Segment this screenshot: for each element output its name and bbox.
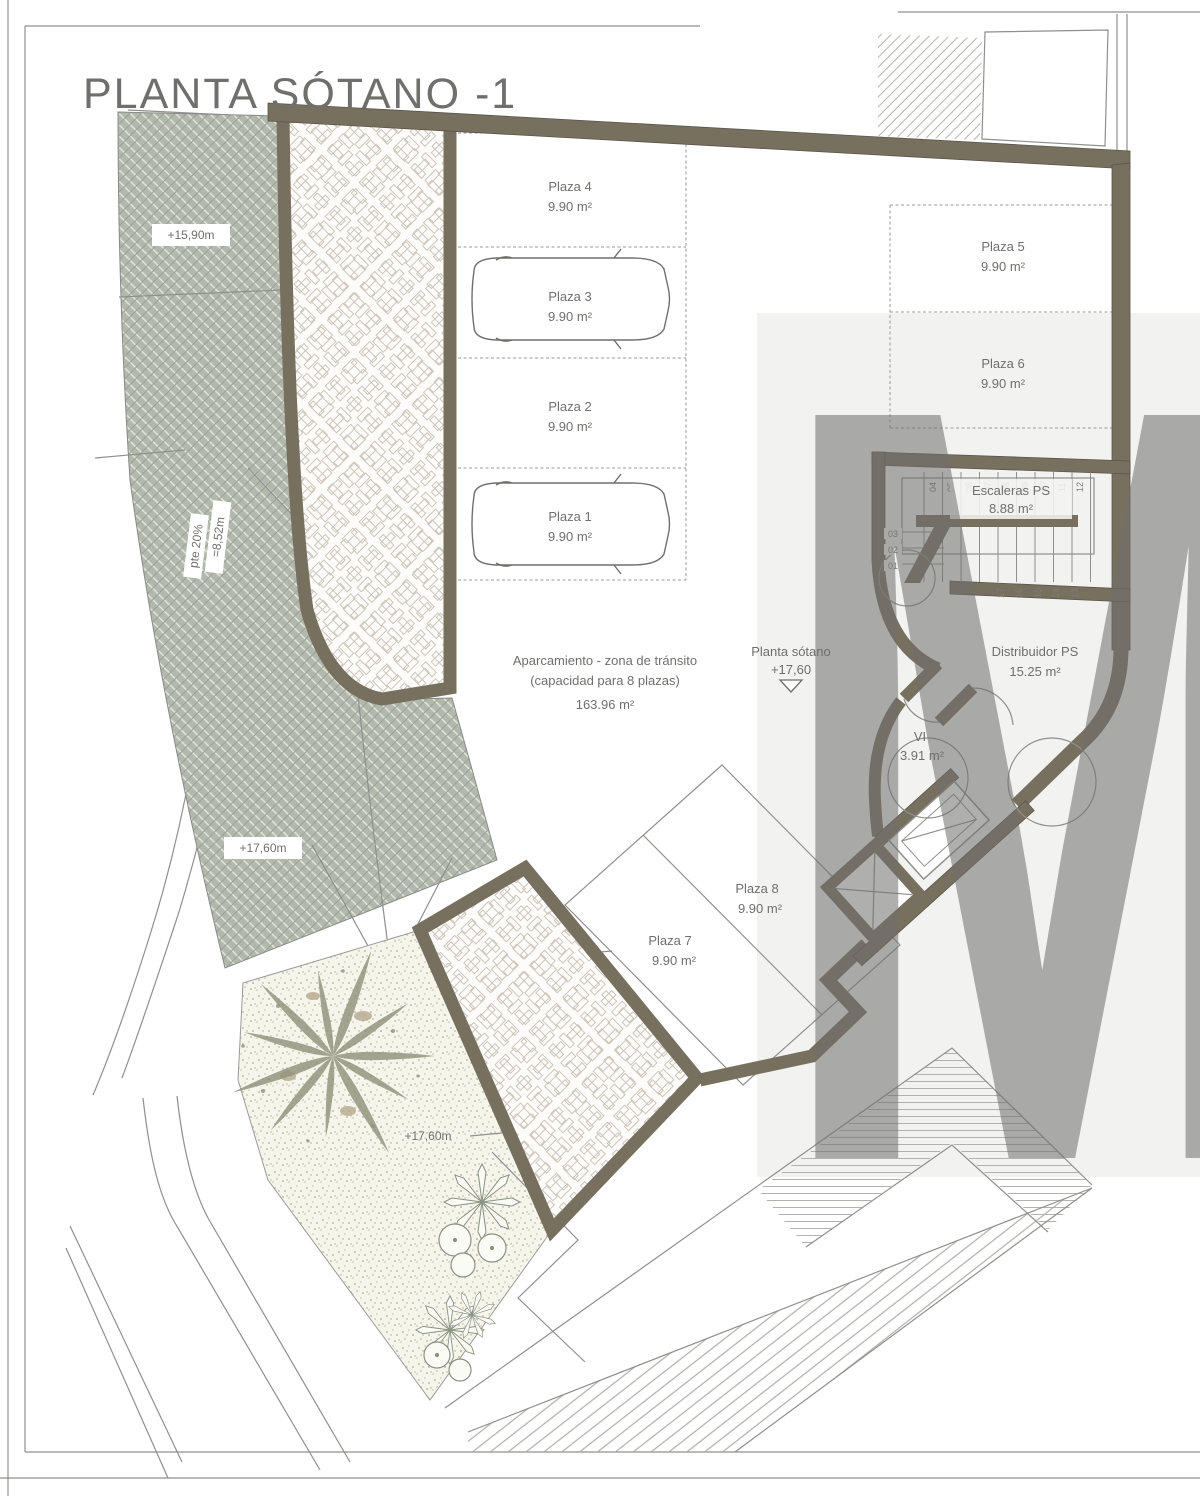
parking-left-column: Plaza 4 9.90 m² Plaza 3 9.90 m² Plaza 2 … [458, 133, 686, 580]
plaza-1-area: 9.90 m² [548, 529, 593, 544]
watermark-letter: M [772, 181, 1200, 1388]
floorplan-page: Plaza 8 9.90 m² Plaza 7 9.90 m² Plaza 4 … [0, 0, 1200, 1496]
plaza-3-name: Plaza 3 [548, 289, 591, 304]
plaza-7-area: 9.90 m² [652, 953, 697, 968]
floorplan-drawing: Plaza 8 9.90 m² Plaza 7 9.90 m² Plaza 4 … [0, 0, 1200, 1496]
aisle-line2: (capacidad para 8 plazas) [530, 673, 680, 688]
plaza-4-name: Plaza 4 [548, 179, 591, 194]
garden-level: +17,60m [404, 1129, 451, 1143]
ramp-top-level: +15,90m [167, 228, 214, 242]
ramp-mid-level: +17,60m [239, 841, 286, 855]
aisle-area: 163.96 m² [576, 697, 635, 712]
plaza-2-name: Plaza 2 [548, 399, 591, 414]
page-title: PLANTA SÓTANO -1 [83, 70, 517, 118]
topright-neighbor [878, 14, 1127, 155]
plaza-2-area: 9.90 m² [548, 419, 593, 434]
plaza-1-name: Plaza 1 [548, 509, 591, 524]
car-icon [472, 474, 670, 574]
aisle-label: Aparcamiento - zona de tránsito (capacid… [513, 653, 697, 712]
plaza-4-area: 9.90 m² [548, 199, 593, 214]
plaza-7-name: Plaza 7 [648, 933, 691, 948]
plaza-3-area: 9.90 m² [548, 309, 593, 324]
topright-hatch [878, 34, 982, 140]
aisle-line1: Aparcamiento - zona de tránsito [513, 653, 697, 668]
